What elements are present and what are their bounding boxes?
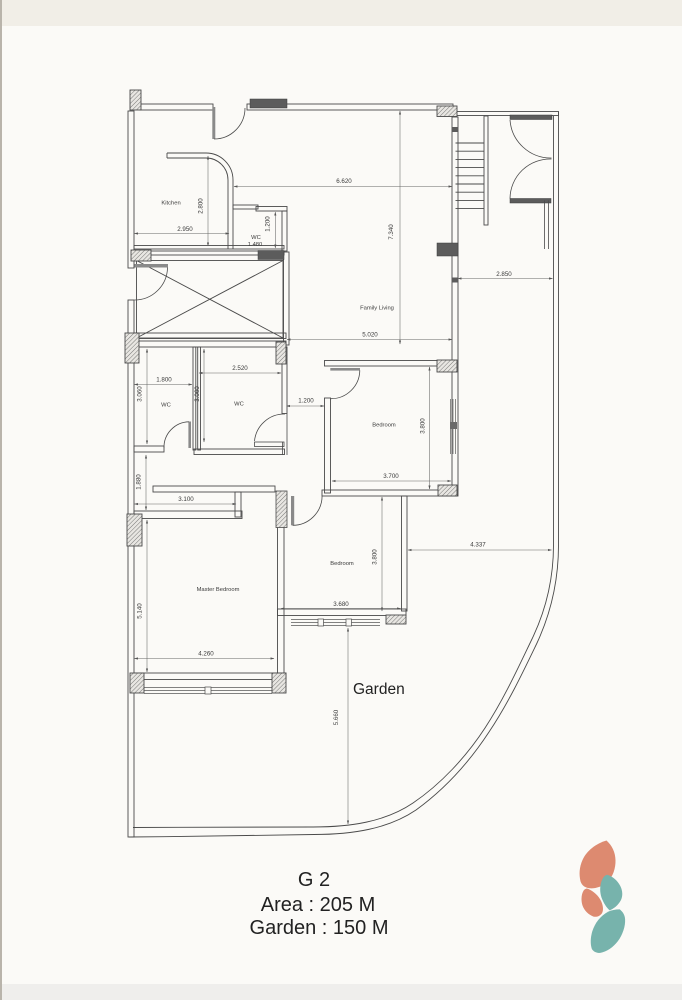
svg-text:3.680: 3.680: [333, 601, 349, 608]
svg-text:Family Living: Family Living: [360, 306, 394, 312]
svg-text:3.800: 3.800: [372, 549, 379, 565]
svg-text:4.260: 4.260: [198, 651, 214, 658]
svg-text:3.700: 3.700: [383, 473, 399, 480]
svg-text:5.140: 5.140: [137, 603, 144, 619]
svg-text:3.100: 3.100: [178, 496, 194, 503]
svg-text:3.800: 3.800: [420, 418, 427, 434]
svg-text:WC: WC: [234, 402, 244, 408]
svg-text:Bedroom: Bedroom: [372, 423, 396, 429]
svg-text:Master Bedroom: Master Bedroom: [197, 587, 240, 593]
svg-text:3.060: 3.060: [137, 386, 144, 402]
svg-text:G 2: G 2: [298, 869, 330, 891]
svg-text:2.800: 2.800: [198, 198, 205, 214]
svg-text:Bedroom: Bedroom: [330, 561, 354, 567]
svg-text:2.850: 2.850: [496, 271, 512, 278]
svg-text:1.880: 1.880: [136, 474, 143, 490]
svg-text:1.800: 1.800: [156, 377, 172, 384]
svg-text:3.060: 3.060: [194, 386, 201, 402]
svg-text:Garden : 150 M: Garden : 150 M: [250, 917, 389, 939]
svg-text:1.200: 1.200: [298, 398, 314, 405]
svg-text:WC: WC: [161, 403, 171, 409]
svg-text:Kitchen: Kitchen: [161, 201, 180, 207]
svg-text:5.660: 5.660: [333, 709, 340, 725]
svg-text:6.620: 6.620: [336, 178, 352, 185]
svg-text:7.340: 7.340: [388, 224, 395, 240]
svg-text:Garden: Garden: [353, 681, 405, 698]
svg-text:2.950: 2.950: [177, 226, 193, 233]
svg-text:WC: WC: [251, 235, 261, 241]
svg-text:1.200: 1.200: [265, 216, 272, 232]
svg-text:5.020: 5.020: [362, 332, 378, 339]
svg-text:1.480: 1.480: [248, 242, 263, 248]
svg-text:4.337: 4.337: [470, 542, 486, 549]
svg-text:2.520: 2.520: [232, 365, 248, 372]
svg-text:Area : 205 M: Area : 205 M: [261, 894, 376, 916]
